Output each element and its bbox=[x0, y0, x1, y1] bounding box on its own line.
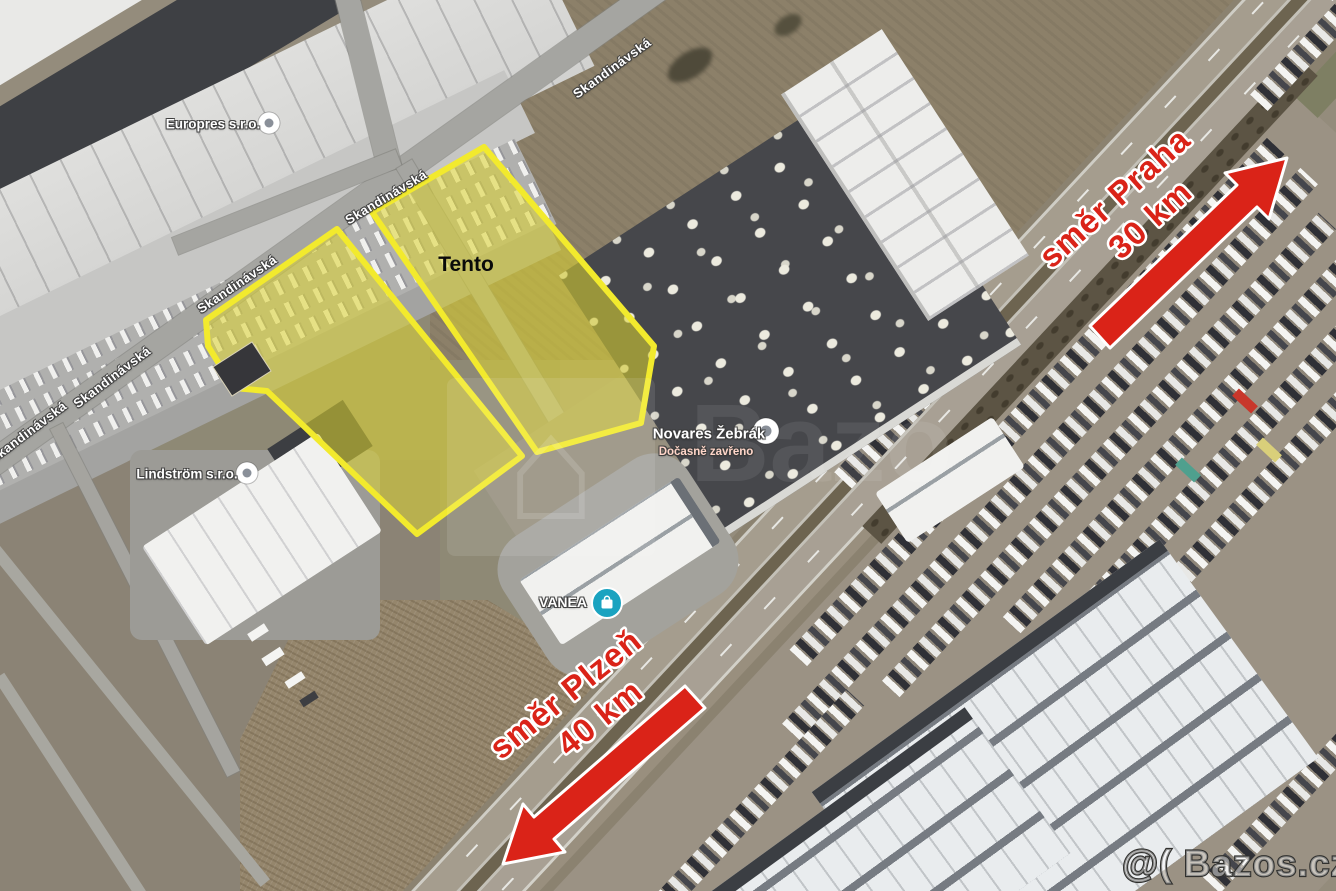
satellite-map: směr Praha 30 km směr Plzeň 40 km @( Baz… bbox=[0, 0, 1336, 891]
poi-label-lindstrom: Lindström s.r.o. bbox=[136, 467, 237, 482]
lindstrom-marker-icon bbox=[236, 462, 258, 484]
photo-watermark-text: Bazo bbox=[690, 380, 953, 507]
europress-marker-icon bbox=[258, 112, 280, 134]
poi-label-vanea: VANEA bbox=[539, 594, 587, 610]
poi-status-novares: Dočasně zavřeno bbox=[659, 446, 754, 458]
plot-label-tento: Tento bbox=[438, 253, 494, 277]
photo-watermark-house-icon: ⌂ bbox=[447, 378, 655, 556]
poi-label-novares: Novares Žebrák bbox=[653, 426, 766, 443]
vanea-marker-icon bbox=[592, 588, 622, 618]
bazos-watermark: @( Bazos.cz bbox=[1122, 843, 1336, 884]
poi-label-europress: Europres s.r.o. bbox=[166, 117, 261, 132]
